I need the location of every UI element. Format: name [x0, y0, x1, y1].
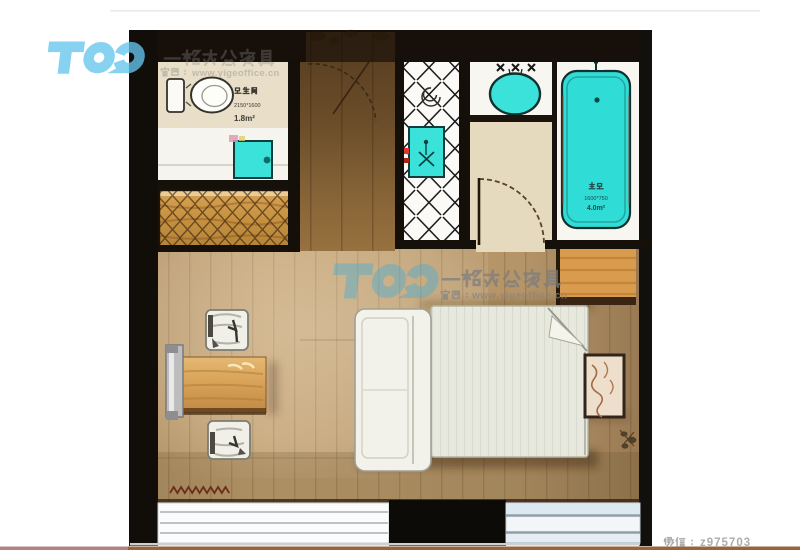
svg-text:1600*750: 1600*750 — [584, 196, 608, 202]
svg-text:z975703: z975703 — [700, 537, 751, 549]
svg-text:1.8m²: 1.8m² — [234, 114, 255, 123]
svg-text:www.yigeoffice.cn: www.yigeoffice.cn — [471, 291, 567, 302]
svg-text:2150*1600: 2150*1600 — [234, 103, 261, 109]
svg-text:www.yigeoffice.cn: www.yigeoffice.cn — [191, 68, 280, 79]
svg-text:4.0m²: 4.0m² — [587, 205, 606, 212]
